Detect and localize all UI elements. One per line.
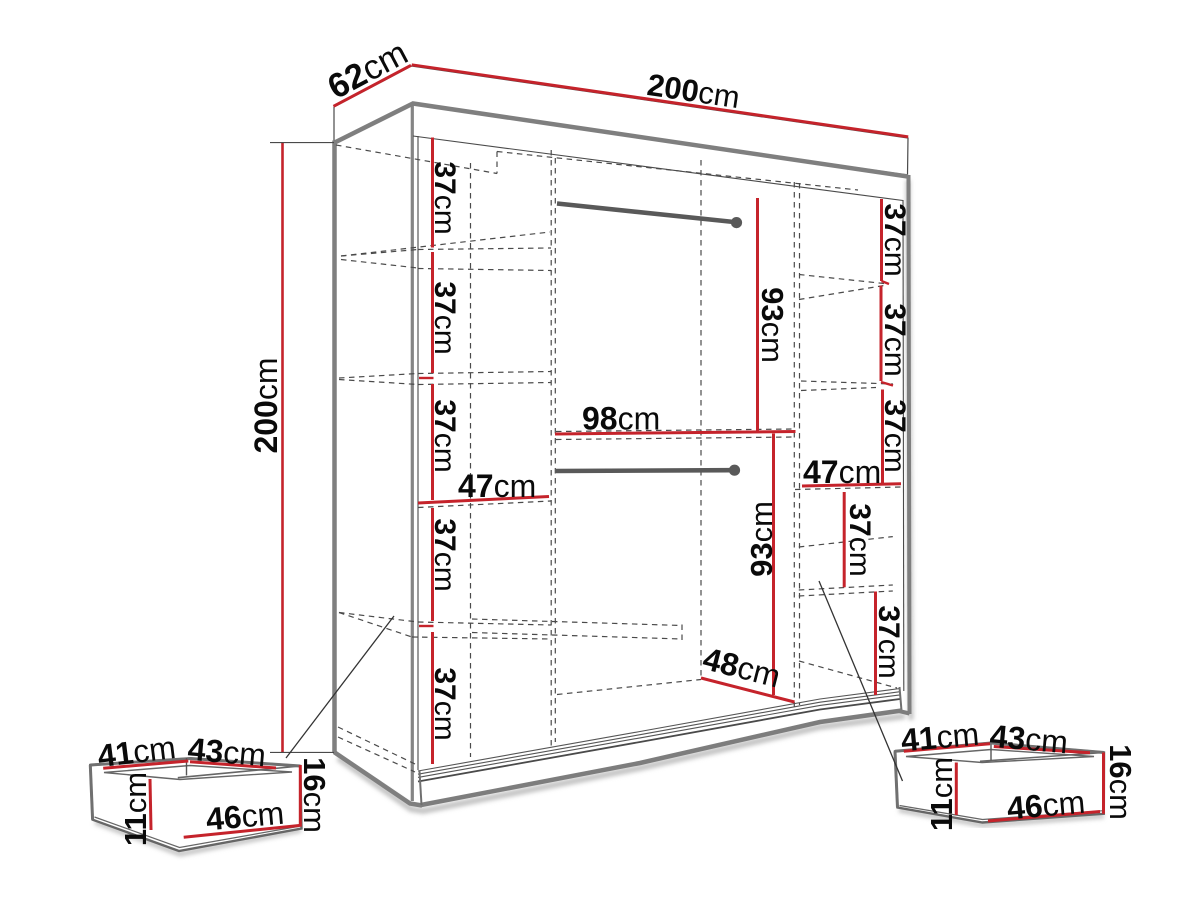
svg-text:37cm: 37cm (878, 399, 911, 472)
svg-text:47cm: 47cm (458, 468, 536, 504)
svg-text:46cm: 46cm (204, 795, 285, 838)
svg-text:48cm: 48cm (699, 640, 784, 694)
svg-text:37cm: 37cm (878, 303, 911, 376)
svg-text:47cm: 47cm (803, 454, 881, 490)
svg-text:43cm: 43cm (186, 731, 267, 774)
svg-text:37cm: 37cm (428, 518, 461, 591)
svg-text:37cm: 37cm (428, 399, 461, 472)
svg-text:11cm: 11cm (924, 757, 959, 831)
svg-text:37cm: 37cm (428, 667, 461, 740)
svg-text:37cm: 37cm (872, 605, 905, 678)
svg-text:93cm: 93cm (744, 501, 779, 577)
svg-text:16cm: 16cm (1103, 744, 1138, 820)
svg-text:16cm: 16cm (297, 757, 332, 833)
svg-text:46cm: 46cm (1005, 784, 1086, 827)
svg-text:43cm: 43cm (988, 718, 1069, 761)
svg-text:93cm: 93cm (755, 287, 790, 363)
svg-text:98cm: 98cm (582, 401, 660, 437)
svg-text:37cm: 37cm (878, 203, 911, 276)
svg-text:37cm: 37cm (843, 503, 876, 576)
svg-text:37cm: 37cm (428, 161, 461, 234)
svg-text:41cm: 41cm (899, 716, 980, 759)
svg-text:200cm: 200cm (248, 357, 284, 453)
svg-text:11cm: 11cm (118, 772, 153, 846)
svg-text:37cm: 37cm (428, 281, 461, 354)
